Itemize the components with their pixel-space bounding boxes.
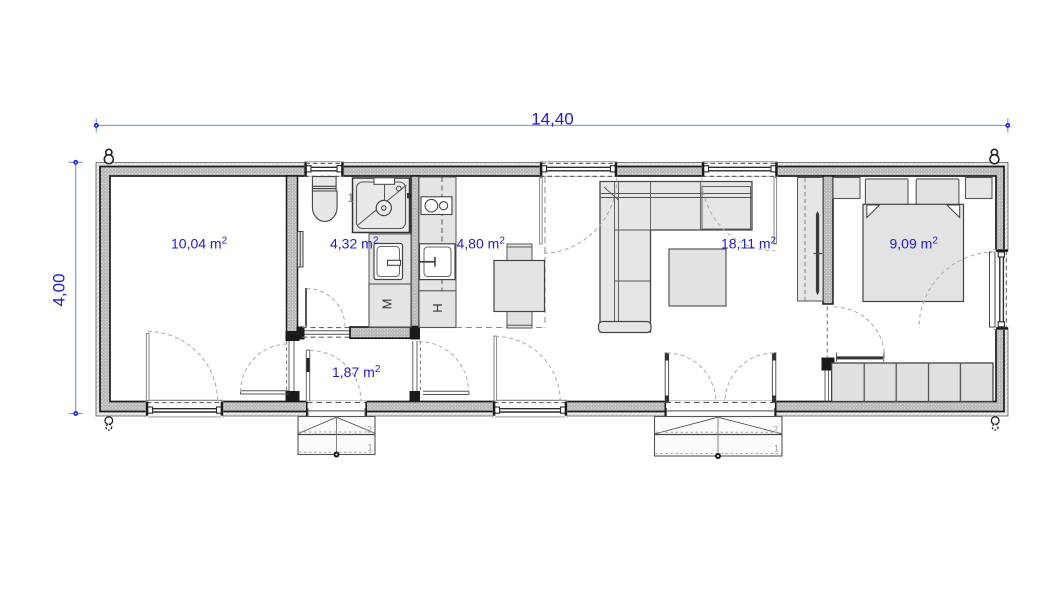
svg-text:1: 1: [348, 193, 354, 205]
svg-text:4,32 m2: 4,32 m2: [330, 236, 379, 252]
svg-text:4,80 m2: 4,80 m2: [457, 236, 506, 252]
svg-text:M: M: [380, 299, 395, 310]
svg-text:2: 2: [367, 425, 372, 435]
svg-text:2: 2: [773, 425, 778, 435]
svg-text:10,04 m2: 10,04 m2: [171, 236, 228, 252]
svg-text:1: 1: [368, 443, 373, 453]
svg-text:9,09 m2: 9,09 m2: [890, 236, 939, 252]
svg-text:14,40: 14,40: [531, 110, 574, 129]
svg-text:4,00: 4,00: [50, 273, 69, 306]
svg-text:1,87 m2: 1,87 m2: [332, 364, 381, 380]
svg-text:H: H: [430, 303, 445, 312]
svg-text:18,11 m2: 18,11 m2: [721, 236, 777, 252]
svg-text:1: 1: [774, 444, 779, 454]
